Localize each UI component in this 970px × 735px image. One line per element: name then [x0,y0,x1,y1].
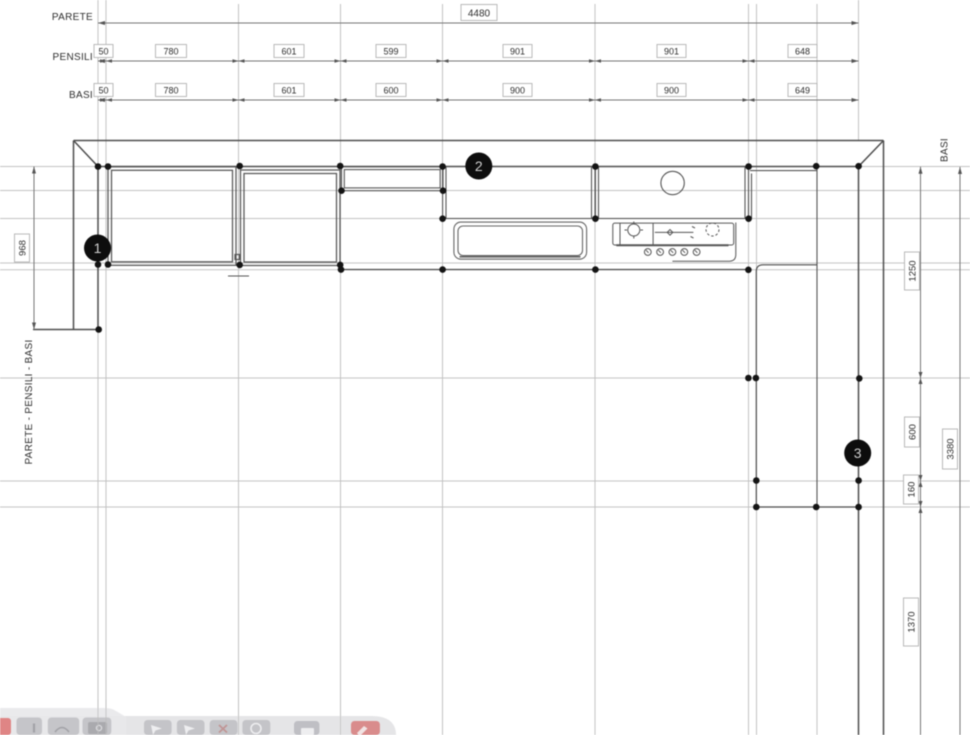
svg-text:900: 900 [664,86,679,96]
svg-text:160: 160 [907,482,918,498]
svg-text:601: 601 [281,86,296,96]
svg-text:648: 648 [795,47,810,57]
svg-text:4480: 4480 [468,9,491,20]
svg-text:BASI: BASI [940,138,951,162]
svg-text:901: 901 [664,47,679,57]
svg-text:600: 600 [383,86,398,96]
svg-text:780: 780 [163,47,178,57]
svg-text:1250: 1250 [908,260,919,281]
svg-text:3380: 3380 [946,438,957,459]
svg-text:2: 2 [475,158,483,174]
svg-text:599: 599 [383,47,398,57]
svg-text:901: 901 [510,47,525,57]
svg-text:PARETE - PENSILI - BASI: PARETE - PENSILI - BASI [24,339,35,464]
svg-text:50: 50 [98,47,108,57]
svg-text:1: 1 [94,240,102,256]
svg-text:900: 900 [510,86,525,96]
svg-text:600: 600 [908,424,919,440]
svg-text:601: 601 [281,47,296,57]
svg-text:3: 3 [854,445,862,461]
svg-text:PENSILI: PENSILI [53,52,93,63]
svg-text:1370: 1370 [907,611,918,632]
svg-text:968: 968 [18,240,29,256]
svg-text:649: 649 [795,86,810,96]
svg-text:50: 50 [98,86,108,96]
svg-text:780: 780 [163,86,178,96]
svg-text:BASI: BASI [69,90,93,101]
svg-text:PARETE: PARETE [52,12,93,23]
